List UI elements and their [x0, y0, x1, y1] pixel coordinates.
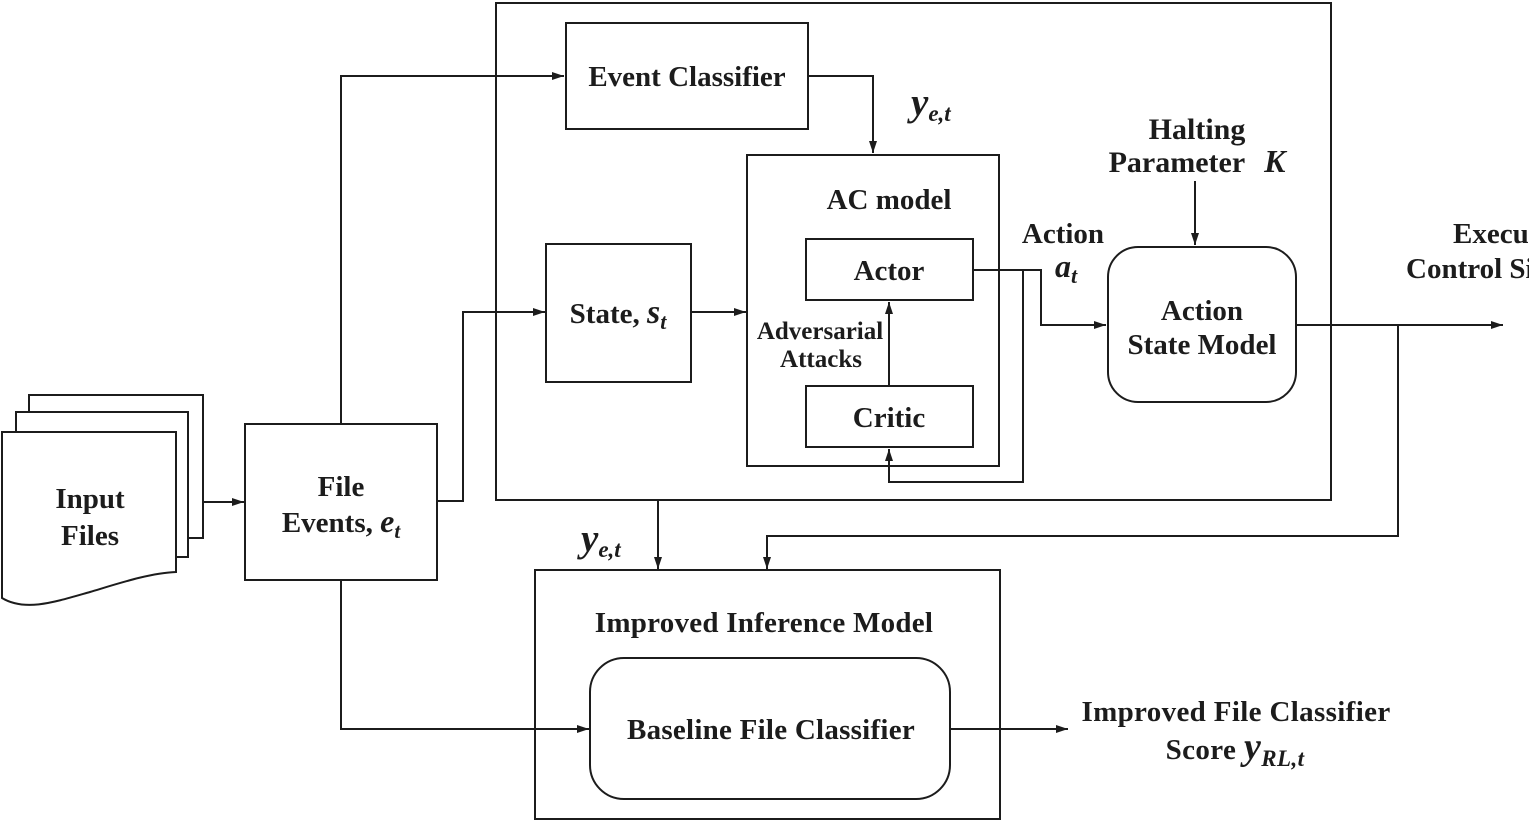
svg-text:Improved Inference Model: Improved Inference Model: [595, 607, 933, 639]
svg-text:Input: Input: [55, 483, 125, 515]
svg-text:Control Signal: Control Signal: [1406, 253, 1529, 285]
svg-text:Actor: Actor: [854, 255, 925, 287]
svg-text:Files: Files: [61, 520, 119, 552]
svg-text:Critic: Critic: [853, 402, 926, 434]
svg-text:State, st: State, st: [570, 294, 668, 334]
svg-text:Adversarial: Adversarial: [757, 318, 883, 345]
svg-text:State Model: State Model: [1128, 329, 1277, 361]
svg-text:Events, et: Events, et: [282, 503, 402, 543]
svg-text:Action: Action: [1161, 295, 1243, 327]
svg-text:File: File: [318, 471, 365, 503]
svg-text:Halting: Halting: [1149, 113, 1246, 146]
svg-text:Action: Action: [1022, 218, 1104, 250]
svg-text:Improved File Classifier: Improved File Classifier: [1081, 696, 1390, 728]
svg-text:AC model: AC model: [827, 184, 952, 216]
svg-text:Executable: Executable: [1453, 218, 1529, 250]
svg-text:Attacks: Attacks: [780, 346, 862, 373]
svg-text:Event Classifier: Event Classifier: [588, 61, 785, 93]
svg-text:Baseline File Classifier: Baseline File Classifier: [627, 714, 915, 746]
